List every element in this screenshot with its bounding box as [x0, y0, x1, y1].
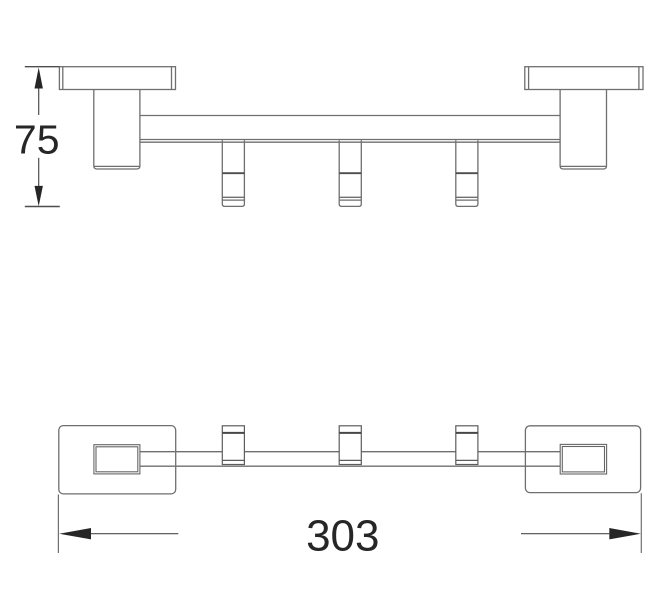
svg-text:75: 75 [14, 117, 60, 163]
svg-text:303: 303 [306, 512, 379, 561]
